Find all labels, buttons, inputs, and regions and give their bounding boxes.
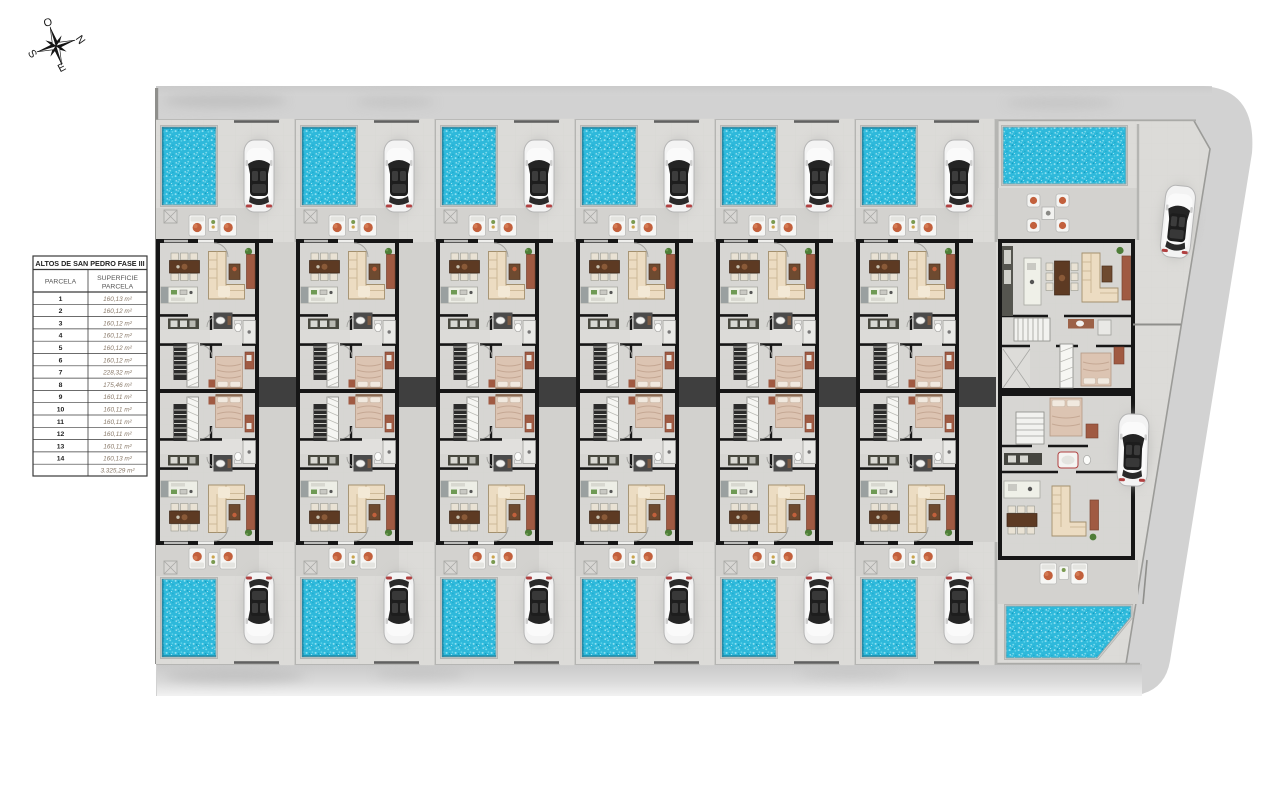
svg-text:12: 12 bbox=[57, 431, 65, 438]
svg-text:PARCELA: PARCELA bbox=[102, 284, 134, 291]
svg-text:160,12 m²: 160,12 m² bbox=[103, 345, 133, 352]
svg-text:160,11 m²: 160,11 m² bbox=[103, 419, 132, 426]
svg-text:2: 2 bbox=[59, 308, 63, 315]
svg-text:7: 7 bbox=[59, 370, 63, 377]
svg-text:PARCELA: PARCELA bbox=[45, 279, 77, 286]
svg-text:160,13 m²: 160,13 m² bbox=[103, 296, 133, 303]
svg-text:160,12 m²: 160,12 m² bbox=[103, 333, 133, 340]
svg-text:160,11 m²: 160,11 m² bbox=[103, 407, 132, 414]
svg-text:160,12 m²: 160,12 m² bbox=[103, 357, 133, 364]
svg-text:11: 11 bbox=[57, 419, 64, 426]
svg-text:6: 6 bbox=[59, 357, 63, 364]
svg-text:SUPERFICIE: SUPERFICIE bbox=[97, 275, 138, 282]
svg-text:13: 13 bbox=[57, 443, 65, 450]
svg-text:160,12 m²: 160,12 m² bbox=[103, 308, 133, 315]
svg-text:1: 1 bbox=[59, 296, 63, 303]
svg-text:160,11 m²: 160,11 m² bbox=[103, 394, 132, 401]
svg-text:14: 14 bbox=[57, 456, 65, 463]
svg-text:4: 4 bbox=[59, 333, 63, 340]
svg-text:228,32 m²: 228,32 m² bbox=[102, 370, 133, 377]
svg-text:10: 10 bbox=[57, 407, 65, 414]
svg-text:160,13 m²: 160,13 m² bbox=[103, 456, 133, 463]
svg-text:160,11 m²: 160,11 m² bbox=[103, 431, 132, 438]
svg-text:ALTOS DE SAN PEDRO FASE III: ALTOS DE SAN PEDRO FASE III bbox=[35, 259, 144, 268]
svg-text:3: 3 bbox=[59, 320, 63, 327]
svg-text:3.325,29 m²: 3.325,29 m² bbox=[100, 468, 135, 475]
svg-text:9: 9 bbox=[59, 394, 63, 401]
svg-text:160,12 m²: 160,12 m² bbox=[103, 320, 133, 327]
svg-text:8: 8 bbox=[59, 382, 63, 389]
svg-text:175,46 m²: 175,46 m² bbox=[103, 382, 133, 389]
svg-text:160,11 m²: 160,11 m² bbox=[103, 443, 132, 450]
svg-text:5: 5 bbox=[59, 345, 63, 352]
